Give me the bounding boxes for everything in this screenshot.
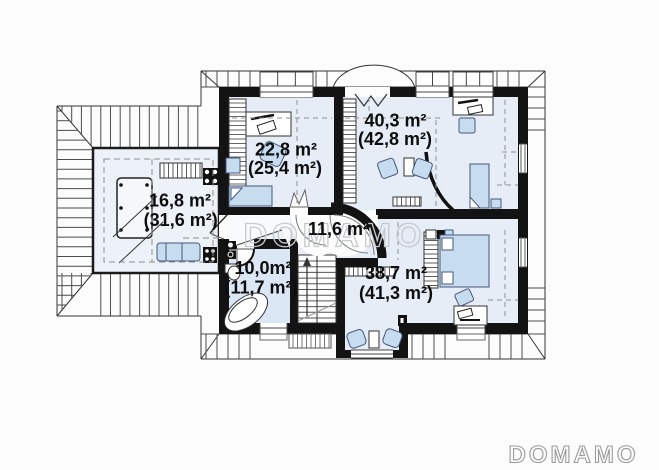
svg-text:DOMAMO: DOMAMO [509, 442, 639, 469]
svg-text:38,7 m²: 38,7 m² [365, 263, 427, 283]
svg-text:(31,6 m²): (31,6 m²) [144, 210, 218, 230]
svg-text:22,8 m²: 22,8 m² [255, 140, 317, 160]
svg-text:(42,8 m²): (42,8 m²) [358, 129, 432, 149]
svg-text:10,0m²: 10,0m² [234, 258, 291, 278]
svg-text:16,8 m²: 16,8 m² [149, 191, 211, 211]
svg-text:(41,3 m²): (41,3 m²) [359, 283, 433, 303]
svg-text:40,3 m²: 40,3 m² [364, 111, 426, 131]
svg-text:11,6 m²: 11,6 m² [308, 219, 369, 239]
svg-text:(25,4 m²): (25,4 m²) [248, 158, 322, 178]
svg-text:(11,7 m²): (11,7 m²) [224, 278, 297, 298]
